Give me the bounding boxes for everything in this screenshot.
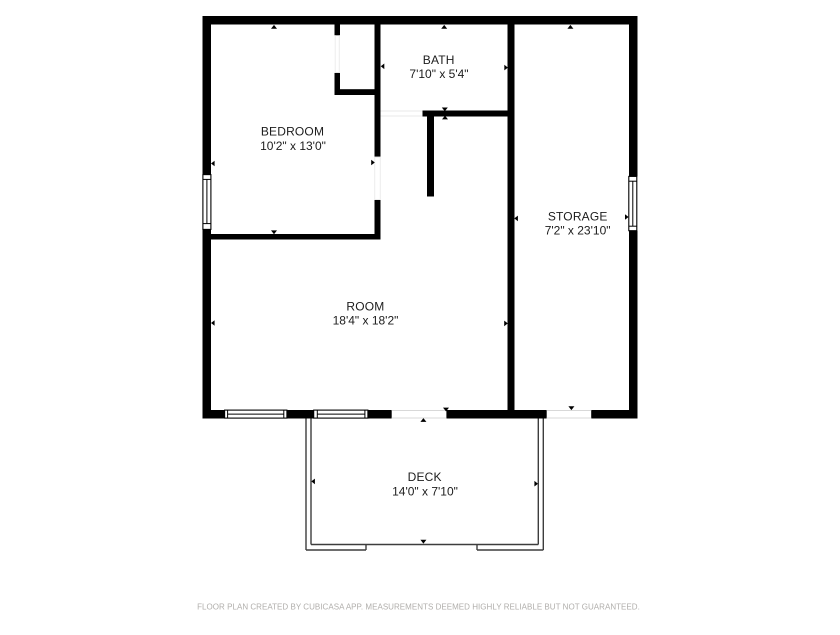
svg-text:14'0" x 7'10": 14'0" x 7'10" xyxy=(392,485,458,499)
svg-text:ROOM: ROOM xyxy=(346,300,384,314)
svg-text:10'2" x 13'0": 10'2" x 13'0" xyxy=(260,139,326,153)
svg-text:STORAGE: STORAGE xyxy=(548,210,608,224)
svg-text:7'10" x 5'4": 7'10" x 5'4" xyxy=(409,67,468,81)
svg-text:FLOOR PLAN CREATED BY CUBICASA: FLOOR PLAN CREATED BY CUBICASA APP. MEAS… xyxy=(197,603,640,612)
svg-text:BEDROOM: BEDROOM xyxy=(261,125,324,139)
svg-text:18'4" x 18'2": 18'4" x 18'2" xyxy=(333,314,399,328)
svg-text:DECK: DECK xyxy=(408,470,442,484)
svg-text:7'2" x 23'10": 7'2" x 23'10" xyxy=(545,223,611,237)
svg-text:BATH: BATH xyxy=(423,53,455,67)
